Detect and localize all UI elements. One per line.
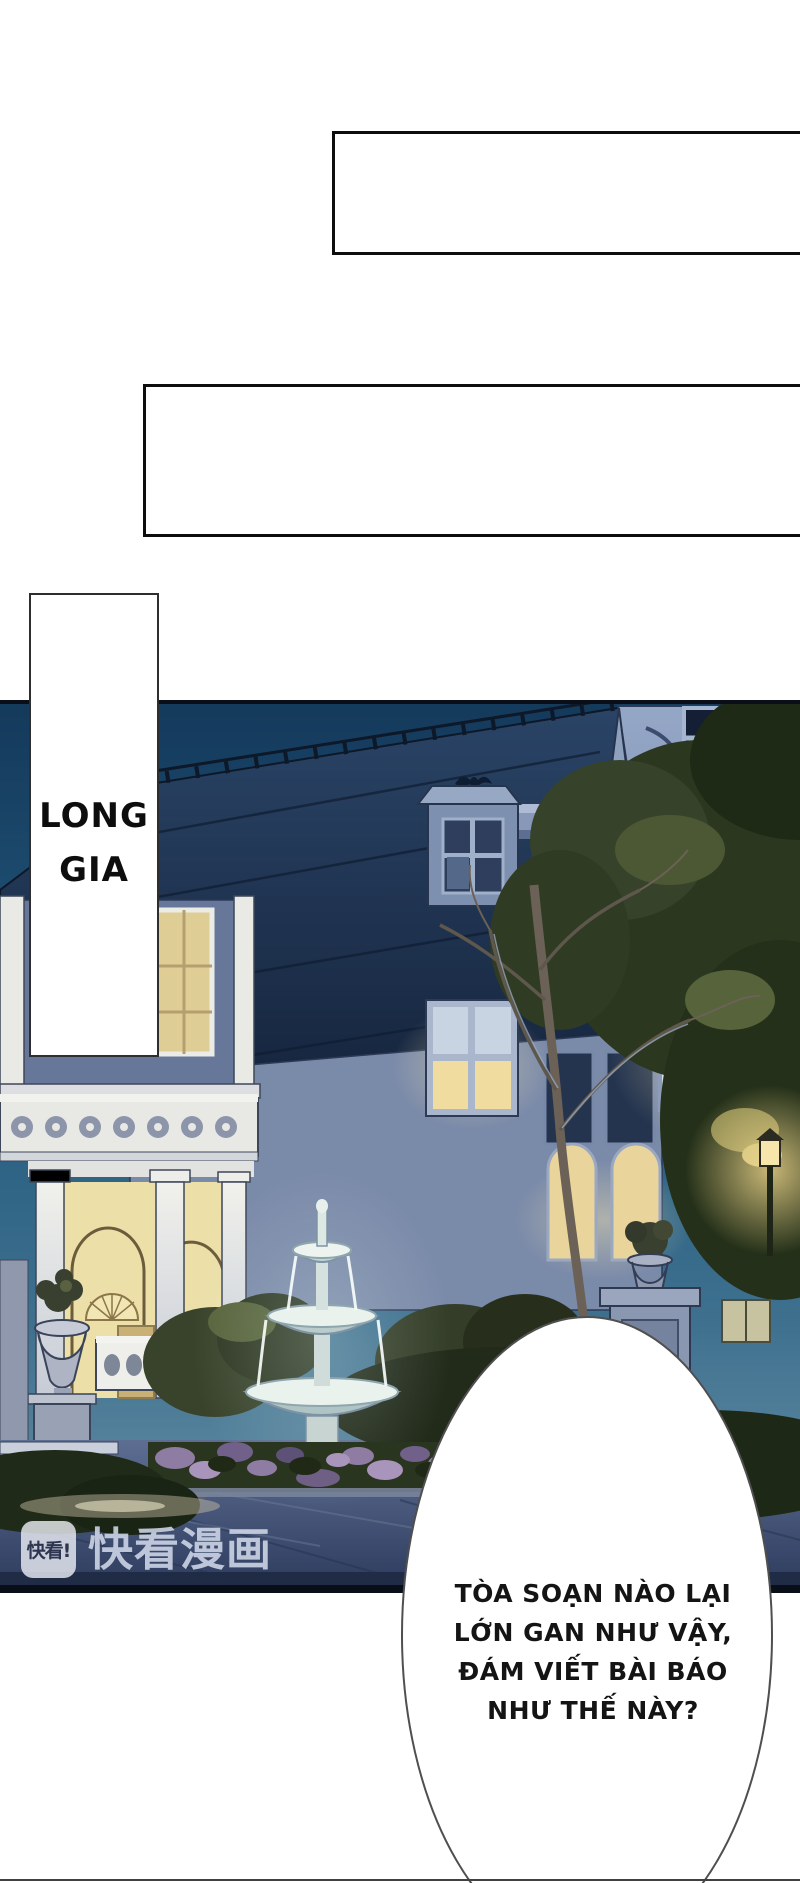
next-panel-border [0, 1879, 800, 1881]
watermark-brand-text: 快看漫画 [88, 1521, 272, 1578]
speech-bubble-text: TÒA SOẠN NÀO LẠI LỚN GAN NHƯ VẬY, ĐÁM VI… [440, 1574, 746, 1730]
kuaikan-logo-icon: 快看! [21, 1521, 76, 1578]
bubble-line: LỚN GAN NHƯ VẬY, [440, 1613, 746, 1652]
caption-box-1 [332, 131, 800, 255]
bubble-line: NHƯ THẾ NÀY? [440, 1691, 746, 1730]
comic-page: 快看! 快看漫画 LONG GIA TÒA SOẠN NÀO LẠI LỚN G… [0, 0, 800, 1883]
panel-label-box: LONG GIA [29, 593, 159, 1057]
caption-box-2 [143, 384, 800, 537]
panel-label-line-2: GIA [59, 843, 129, 897]
bubble-line: ĐÁM VIẾT BÀI BÁO [440, 1652, 746, 1691]
bubble-line: TÒA SOẠN NÀO LẠI [440, 1574, 746, 1613]
kuaikan-logo-text: 快看! [27, 1536, 71, 1563]
panel-label-line-1: LONG [39, 789, 149, 843]
kuaikan-watermark: 快看! 快看漫画 [21, 1521, 272, 1578]
